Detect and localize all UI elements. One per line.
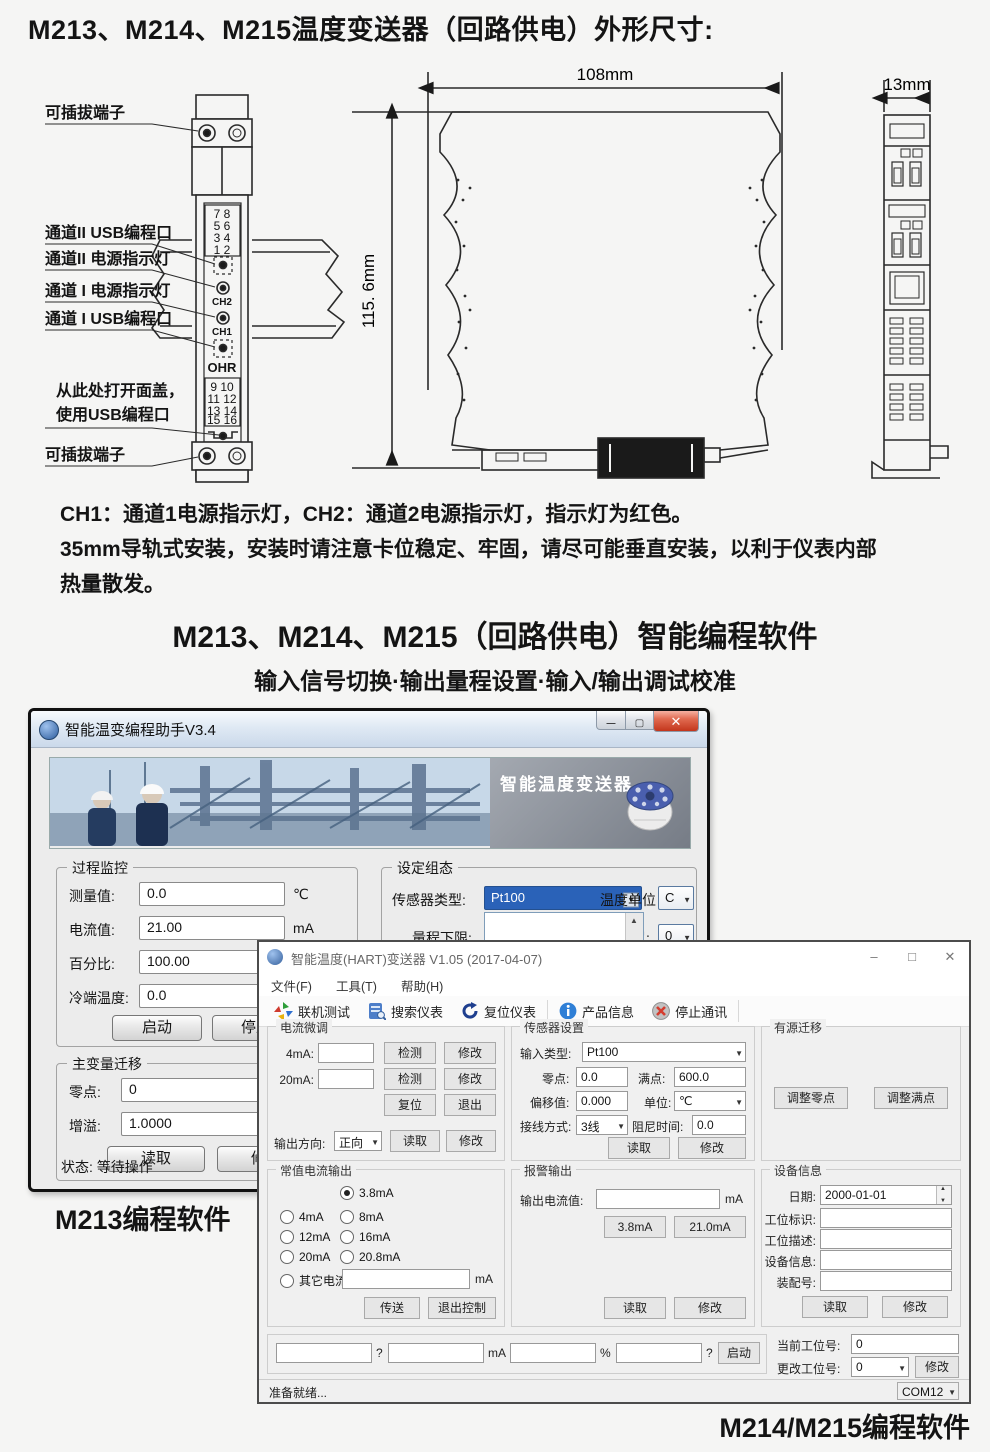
group-title: 主变量迁移 [67, 1054, 147, 1074]
dim-height: 115. 6mm [359, 254, 378, 328]
ch1-label: CH1 [212, 327, 232, 338]
output-direction-combobox[interactable]: 正向 [334, 1131, 382, 1151]
status-text: 准备就绪... [269, 1384, 327, 1401]
texture-dots [455, 179, 766, 402]
toolbar-product-info[interactable]: 产品信息 [550, 1002, 643, 1021]
callout-open-cover-2: 使用USB编程口 [55, 405, 170, 424]
input-type-label: 输入类型: [520, 1045, 571, 1062]
dim-width: 108mm [577, 65, 634, 84]
menu-tools[interactable]: 工具(T) [324, 972, 389, 999]
group-current-trim: 电流微调 4mA: 检测 修改 20mA: 检测 修改 复位 退出 输出方向: … [267, 1026, 505, 1161]
group-title: 过程监控 [67, 858, 133, 878]
menu-file[interactable]: 文件(F) [259, 972, 324, 999]
banner-right-panel: 智能温度变送器 [490, 758, 690, 848]
exit-button[interactable]: 退出 [444, 1094, 496, 1116]
assembly-label: 装配号: [762, 1274, 816, 1291]
group-title: 常值电流输出 [276, 1162, 356, 1179]
group-title: 设备信息 [770, 1162, 826, 1179]
modify-button[interactable]: 修改 [674, 1297, 746, 1319]
radio-20-8ma[interactable]: 20.8mA [340, 1250, 400, 1264]
app-icon [39, 720, 59, 740]
modify-station-button[interactable]: 修改 [915, 1356, 959, 1378]
zero-label: 零点: [542, 1070, 569, 1087]
callout-plug-bottom: 可插拔端子 [45, 445, 125, 464]
callout-ch2-usb: 通道II USB编程口 [45, 223, 172, 242]
close-button[interactable] [653, 711, 699, 732]
maximize-button[interactable] [625, 711, 654, 730]
group-active-shift: 有源迁移 调整零点 调整满点 [761, 1026, 961, 1161]
alarm-current-unit: mA [725, 1192, 743, 1206]
modify-button[interactable]: 修改 [678, 1137, 746, 1159]
tag-input[interactable] [820, 1208, 952, 1228]
note-line-2: 35mm导轨式安装，安装时请注意卡位稳定、牢固，请尽可能垂直安装，以利于仪表内部 [60, 533, 970, 563]
radio-16ma[interactable]: 16mA [340, 1230, 390, 1244]
window-m214-m215-software: 智能温度(HART)变送器 V1.05 (2017-04-07) – □ ✕ 文… [257, 940, 971, 1404]
group-title: 设定组态 [392, 858, 458, 878]
read-direction-button[interactable]: 读取 [390, 1130, 440, 1152]
test-unit-4: ? [706, 1346, 713, 1360]
callout-open-cover-1: 从此处打开面盖， [56, 381, 184, 400]
brand-logo: OHR [208, 360, 238, 375]
20ma-label: 20mA: [270, 1073, 314, 1087]
group-device-info: 设备信息 日期: 2000-01-01 工位标识: 工位描述: 设备信息: 装配… [761, 1169, 961, 1327]
measured-value-label: 测量值: [69, 886, 115, 906]
side-view [872, 80, 948, 478]
callout-ch1-usb: 通道 I USB编程口 [45, 309, 172, 328]
change-station-label: 更改工位号: [777, 1360, 840, 1377]
callout-ch1-led: 通道 I 电源指示灯 [45, 281, 170, 300]
date-label: 日期: [762, 1188, 816, 1205]
temp-unit-combobox[interactable]: C [658, 886, 694, 910]
note-line-3: 热量散发。 [60, 568, 970, 598]
change-station-combobox[interactable]: 0 [851, 1357, 909, 1377]
test-input-1[interactable] [276, 1343, 372, 1363]
gain-label: 增溢: [69, 1116, 101, 1136]
svg-text:15 16: 15 16 [207, 413, 237, 427]
4ma-input[interactable] [318, 1043, 374, 1063]
alarm-current-label: 输出电流值: [520, 1192, 583, 1209]
reset-button[interactable]: 复位 [384, 1094, 436, 1116]
radio-4ma[interactable]: 4mA [280, 1210, 324, 1224]
radio-3-8ma[interactable]: 3.8mA [340, 1186, 394, 1200]
banner-label: 智能温度变送器 [500, 770, 633, 795]
toolbar: 联机测试 搜索仪表 复位仪表 产品信息 [259, 996, 969, 1027]
device-info-label: 设备信息: [762, 1253, 816, 1270]
chevron-down-icon [617, 1118, 625, 1132]
test-input-3[interactable] [510, 1343, 596, 1363]
tag-label: 工位标识: [762, 1211, 816, 1228]
chevron-down-icon [948, 1384, 956, 1398]
search-instrument-icon [368, 1002, 386, 1020]
window-title: 智能温变编程助手V3.4 [65, 719, 216, 740]
toolbar-search-instrument[interactable]: 搜索仪表 [359, 1002, 452, 1021]
measured-value-input[interactable]: 0.0 [139, 882, 285, 906]
dim-side-width: 13mm [883, 75, 930, 94]
full-input[interactable]: 600.0 [674, 1067, 746, 1087]
unit-label: mA [293, 920, 314, 936]
unit-combobox[interactable]: ℃ [674, 1091, 746, 1111]
assembly-input[interactable] [820, 1271, 952, 1291]
toolbar-separator [738, 1000, 739, 1022]
current-value-label: 电流值: [69, 920, 115, 940]
maximize-button[interactable]: □ [893, 942, 931, 972]
cold-junction-label: 冷端温度: [69, 988, 129, 1008]
modify-direction-button[interactable]: 修改 [446, 1130, 496, 1152]
test-input-4[interactable] [616, 1343, 702, 1363]
close-button[interactable]: ✕ [931, 942, 969, 972]
detect-20ma-button[interactable]: 检测 [384, 1068, 436, 1090]
start-button[interactable]: 启动 [718, 1342, 760, 1364]
desc-input[interactable] [820, 1229, 952, 1249]
transmitter-image [618, 772, 682, 836]
unit-label: ℃ [293, 886, 309, 903]
caption-m214-m215: M214/M215编程软件 [580, 1406, 970, 1445]
test-unit-1: ? [376, 1346, 383, 1360]
group-title: 传感器设置 [520, 1019, 588, 1036]
chevron-down-icon [898, 1360, 906, 1374]
sensor-type-label: 传感器类型: [392, 890, 466, 910]
current-station-input[interactable]: 0 [851, 1334, 959, 1354]
status-text: 状态: 等待操作 [61, 1157, 153, 1177]
group-title: 报警输出 [520, 1162, 576, 1179]
banner: 智能温度变送器 [49, 757, 691, 849]
chevron-down-icon [371, 1134, 379, 1148]
test-unit-2: mA [488, 1346, 506, 1360]
send-button[interactable]: 传送 [364, 1297, 420, 1319]
radio-8ma[interactable]: 8mA [340, 1210, 384, 1224]
modify-20ma-button[interactable]: 修改 [444, 1068, 496, 1090]
menu-help[interactable]: 帮助(H) [389, 972, 455, 999]
reset-instrument-icon [461, 1002, 479, 1020]
chevron-down-icon [683, 891, 691, 906]
toolbar-stop-comm[interactable]: 停止通讯 [643, 1002, 736, 1021]
note-line-1: CH1：通道1电源指示灯，CH2：通道2电源指示灯，指示灯为红色。 [60, 498, 970, 528]
modify-4ma-button[interactable]: 修改 [444, 1042, 496, 1064]
current-value-input[interactable]: 21.00 [139, 916, 285, 940]
chevron-down-icon [735, 1045, 743, 1059]
group-title: 电流微调 [276, 1019, 332, 1036]
app-icon [267, 949, 283, 965]
com-port-combobox[interactable]: COM12 [897, 1382, 959, 1400]
callout-plug-top: 可插拔端子 [45, 103, 125, 122]
start-button[interactable]: 启动 [112, 1015, 202, 1041]
20ma-input[interactable] [318, 1069, 374, 1089]
software-subheading: 输入信号切换·输出量程设置·输入/输出调试校准 [0, 662, 990, 696]
device-info-input[interactable] [820, 1250, 952, 1270]
input-type-combobox[interactable]: Pt100 [582, 1042, 746, 1062]
alarm-low-button[interactable]: 3.8mA [604, 1216, 666, 1238]
4ma-label: 4mA: [270, 1047, 314, 1061]
other-current-input[interactable] [342, 1269, 470, 1289]
alarm-current-input[interactable] [596, 1189, 720, 1209]
desc-label: 工位描述: [762, 1232, 816, 1249]
group-alarm-output: 报警输出 输出电流值: mA 3.8mA 21.0mA 读取 修改 [511, 1169, 755, 1327]
dimension-diagram: 可插拔端子 通道II USB编程口 通道II 电源指示灯 通道 I 电源指示灯 … [0, 60, 990, 490]
other-current-unit: mA [475, 1272, 493, 1286]
radio-20ma[interactable]: 20mA [280, 1250, 330, 1264]
spinner-arrows-icon[interactable] [936, 1186, 951, 1204]
detect-4ma-button[interactable]: 检测 [384, 1042, 436, 1064]
svg-text:1 2: 1 2 [214, 243, 231, 257]
radio-other-current[interactable]: 其它电流 [280, 1272, 347, 1289]
test-unit-3: % [600, 1346, 611, 1360]
group-manual-test: ? mA % ? 启动 [267, 1334, 767, 1374]
offset-input[interactable]: 0.000 [576, 1091, 628, 1111]
current-station-label: 当前工位号: [777, 1337, 840, 1354]
percent-label: 百分比: [69, 954, 115, 974]
adjust-zero-button[interactable]: 调整零点 [774, 1087, 848, 1109]
zero-label: 零点: [69, 1082, 101, 1102]
stop-comm-icon [652, 1002, 670, 1020]
toolbar-reset-instrument[interactable]: 复位仪表 [452, 1002, 545, 1021]
output-direction-label: 输出方向: [274, 1135, 325, 1152]
chevron-down-icon [735, 1094, 743, 1108]
menubar: 文件(F) 工具(T) 帮助(H) [259, 972, 969, 997]
product-info-icon [559, 1002, 577, 1020]
zero-input[interactable]: 0.0 [576, 1067, 628, 1087]
read-button[interactable]: 读取 [608, 1137, 670, 1159]
group-const-current: 常值电流输出 3.8mA 4mA 8mA 12mA 16mA 20mA 20.8… [267, 1169, 505, 1327]
alarm-high-button[interactable]: 21.0mA [674, 1216, 746, 1238]
test-input-2[interactable] [388, 1343, 484, 1363]
read-button[interactable]: 读取 [604, 1297, 666, 1319]
software-heading: M213、M214、M215（回路供电）智能编程软件 [0, 612, 990, 656]
page-title: M213、M214、M215温度变送器（回路供电）外形尺寸: [28, 8, 714, 47]
window-title: 智能温度(HART)变送器 V1.05 (2017-04-07) [291, 949, 542, 968]
ch2-label: CH2 [212, 297, 232, 308]
callout-ch2-led: 通道II 电源指示灯 [45, 249, 170, 268]
titlebar[interactable]: 智能温变编程助手V3.4 [31, 711, 707, 748]
caption-m213: M213编程软件 [55, 1198, 231, 1237]
read-button[interactable]: 读取 [802, 1296, 868, 1318]
adjust-full-button[interactable]: 调整满点 [874, 1087, 948, 1109]
wiring-combobox[interactable]: 3线 [576, 1115, 628, 1135]
unit-label: 单位: [644, 1094, 671, 1111]
industrial-photo [50, 758, 490, 846]
wiring-label: 接线方式: [520, 1118, 571, 1135]
titlebar[interactable]: 智能温度(HART)变送器 V1.05 (2017-04-07) – □ ✕ [259, 942, 969, 973]
radio-12ma[interactable]: 12mA [280, 1230, 330, 1244]
minimize-button[interactable] [596, 711, 626, 730]
minimize-button[interactable]: – [855, 942, 893, 972]
date-spinner[interactable]: 2000-01-01 [820, 1185, 952, 1205]
group-sensor-settings: 传感器设置 输入类型: Pt100 零点: 0.0 满点: 600.0 偏移值:… [511, 1026, 755, 1161]
online-test-icon [274, 1002, 293, 1021]
group-title: 有源迁移 [770, 1019, 826, 1036]
damping-time-input[interactable]: 0.0 [692, 1115, 746, 1135]
exit-control-button[interactable]: 退出控制 [428, 1297, 496, 1319]
offset-label: 偏移值: [530, 1094, 569, 1111]
statusbar: 准备就绪... COM12 [259, 1379, 969, 1402]
damping-time-label: 阻尼时间: [632, 1118, 683, 1135]
full-label: 满点: [638, 1070, 665, 1087]
page: M213、M214、M215温度变送器（回路供电）外形尺寸: [0, 0, 990, 1452]
toolbar-online-test[interactable]: 联机测试 [265, 1002, 359, 1021]
top-view [352, 72, 782, 478]
modify-button[interactable]: 修改 [882, 1296, 948, 1318]
temp-unit-label: 温度单位 [600, 890, 656, 910]
